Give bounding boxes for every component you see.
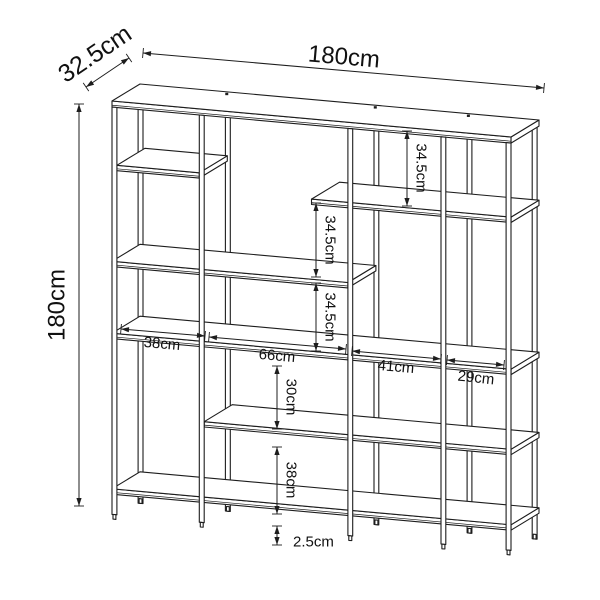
back-post [374, 113, 379, 525]
foot [442, 544, 445, 549]
furniture-dimension-diagram: 32.5cm180cm180cm34.5cm34.5cm34.5cm38cm66… [0, 0, 600, 600]
foot [226, 507, 229, 512]
foot [200, 522, 203, 527]
dim-label-width-29: 29cm [457, 368, 495, 389]
dim-height-2-5: 2.5cm [272, 526, 334, 551]
dim-label-height-34-5-mid: 34.5cm [322, 215, 339, 264]
front-post [506, 143, 511, 551]
dim-label-width-38: 38cm [143, 334, 181, 354]
top-connector-mark [467, 115, 470, 117]
dim-label-depth-overall: 32.5cm [53, 19, 137, 88]
shelf [112, 84, 539, 143]
foot [349, 536, 352, 541]
foot [468, 528, 471, 533]
shelf [117, 148, 227, 178]
dim-label-width-41: 41cm [377, 357, 415, 377]
dim-depth-overall: 32.5cm [53, 19, 137, 91]
dim-width-overall: 180cm [143, 40, 545, 93]
foot [375, 520, 378, 525]
dim-label-height-34-5-low: 34.5cm [322, 292, 339, 341]
shelf [112, 472, 539, 530]
top-connector-mark [225, 93, 228, 95]
back-post [467, 121, 472, 533]
dim-label-height-30: 30cm [283, 379, 300, 416]
dim-label-height-overall: 180cm [44, 269, 71, 341]
shelf [204, 405, 539, 455]
dim-height-overall: 180cm [44, 104, 85, 506]
top-connector-mark [374, 106, 377, 108]
front-post [348, 128, 353, 536]
foot [533, 534, 536, 539]
foot [507, 550, 510, 555]
foot [139, 499, 142, 504]
dim-label-height-34-5-top: 34.5cm [413, 143, 430, 192]
front-post [112, 107, 117, 515]
foot [113, 514, 116, 519]
front-post [199, 115, 204, 523]
dim-label-width-66: 66cm [258, 346, 296, 366]
diagram-canvas: 32.5cm180cm180cm34.5cm34.5cm34.5cm38cm66… [0, 0, 600, 600]
dim-label-height-38: 38cm [283, 462, 300, 499]
back-post [532, 127, 537, 539]
dim-label-height-2-5: 2.5cm [293, 534, 334, 551]
front-post [441, 137, 446, 545]
